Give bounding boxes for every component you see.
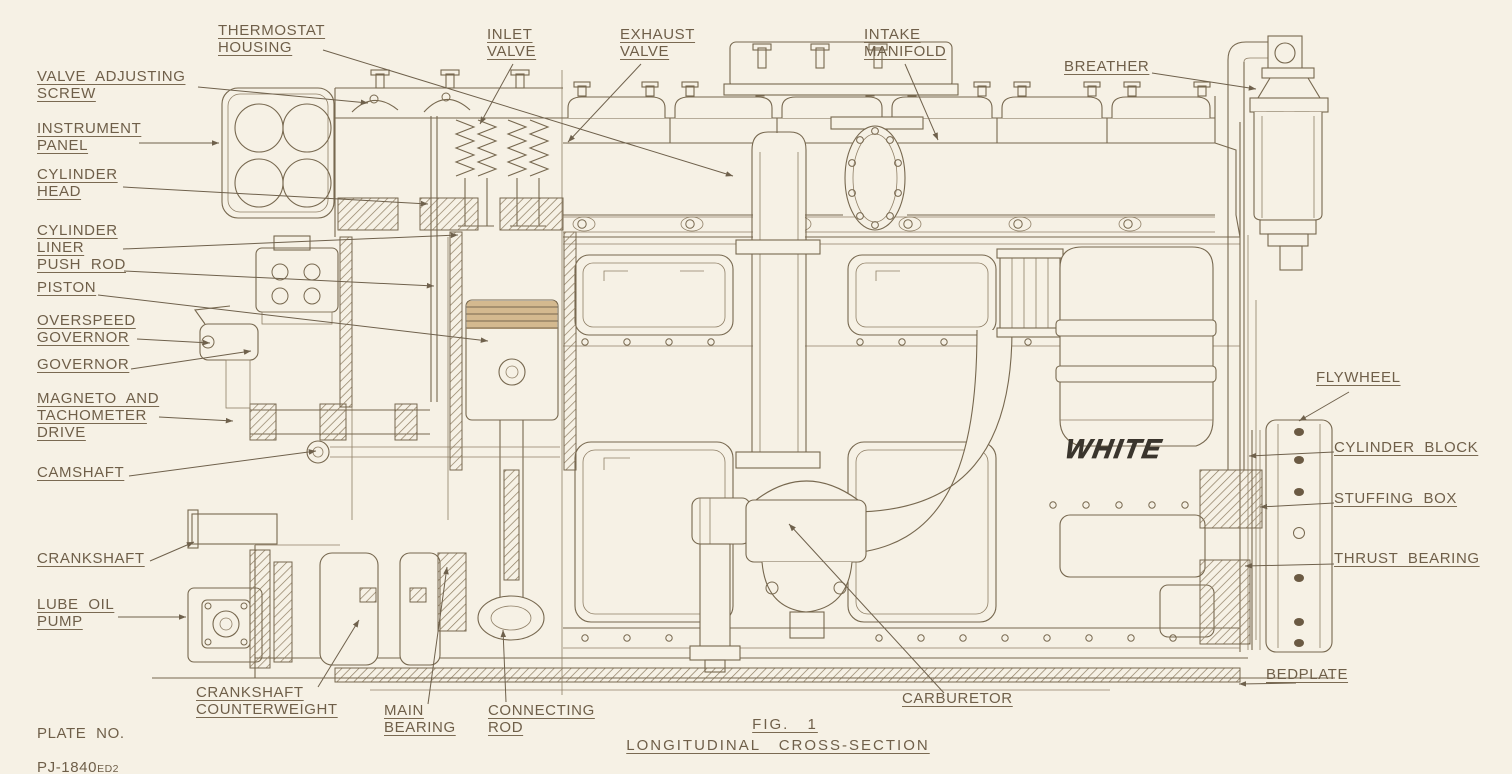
callout-instrument-panel: INSTRUMENT PANEL [37,120,141,154]
callout-exhaust-valve: EXHAUST VALVE [620,26,695,60]
callout-breather: BREATHER [1064,58,1149,75]
figure-title: LONGITUDINAL CROSS-SECTION [608,737,948,754]
callout-push-rod: PUSH ROD [37,256,126,273]
expansion-tank: WHITE [1056,247,1216,464]
exhaust-downpipe [736,132,820,468]
stuffing-box-thrust-bearing [1200,430,1262,650]
plate-number-block: PLATE NO. PJ-1840ED2 [37,708,125,774]
callout-cylinder-head: CYLINDER HEAD [37,166,118,200]
callout-connecting-rod: CONNECTING ROD [488,702,595,736]
callout-bedplate: BEDPLATE [1266,666,1348,683]
leader-piston [98,295,488,341]
piston-assembly [466,300,558,420]
callout-valve-adjusting-screw: VALVE ADJUSTING SCREW [37,68,185,102]
leader-overspeed-governor [137,339,210,343]
manifold-flange [831,117,923,230]
leader-connecting-rod [503,630,506,702]
plate-label: PLATE NO. [37,725,125,742]
leader-inlet-valve [480,64,513,124]
leader-thermostat-housing [323,50,733,176]
callout-cylinder-liner: CYLINDER LINER [37,222,118,256]
cylinder-head-covers [568,82,1240,237]
callout-thermostat-housing: THERMOSTAT HOUSING [218,22,325,56]
callout-lube-oil-pump: LUBE OIL PUMP [37,596,114,630]
plate-suffix: ED2 [97,763,119,774]
leader-magneto-tachometer-drive [159,417,233,421]
callout-crankshaft: CRANKSHAFT [37,550,145,567]
bolt-row-bottom [582,635,1176,641]
leader-camshaft [129,451,316,476]
figure-number: FIG. 1 [700,716,870,733]
valve-springs [456,120,548,176]
leader-bedplate [1239,683,1296,684]
callout-camshaft: CAMSHAFT [37,464,124,481]
engine-cross-section-drawing: WHITE [0,0,1512,774]
callout-thrust-bearing: THRUST BEARING [1334,550,1480,567]
callout-piston: PISTON [37,279,96,296]
callout-main-bearing: MAIN BEARING [384,702,456,736]
leader-cylinder-liner [123,235,458,249]
callout-intake-manifold: INTAKE MANIFOLD [864,26,946,60]
leader-flywheel [1299,392,1349,421]
callout-magneto-tachometer-drive: MAGNETO AND TACHOMETER DRIVE [37,390,159,441]
magneto-governor-group [195,236,338,408]
callout-stuffing-box: STUFFING BOX [1334,490,1457,507]
leader-crankshaft [150,542,194,561]
callout-cylinder-block: CYLINDER BLOCK [1334,439,1478,456]
leader-push-rod [124,271,434,286]
callout-overspeed-governor: OVERSPEED GOVERNOR [37,312,136,346]
engineering-drawing-page: WHITE [0,0,1512,774]
plate-number: PJ-1840 [37,759,97,774]
camshaft-and-drives [250,237,560,463]
breather-shape [1228,36,1328,470]
callout-governor: GOVERNOR [37,356,129,373]
callout-crankshaft-counterweight: CRANKSHAFT COUNTERWEIGHT [196,684,338,718]
instrument-panel-shape [222,88,334,218]
callout-flywheel: FLYWHEEL [1316,369,1401,386]
white-logo: WHITE [1063,433,1165,464]
callout-inlet-valve: INLET VALVE [487,26,536,60]
carburetor-shape [690,481,866,672]
callout-carburetor: CARBURETOR [902,690,1013,707]
